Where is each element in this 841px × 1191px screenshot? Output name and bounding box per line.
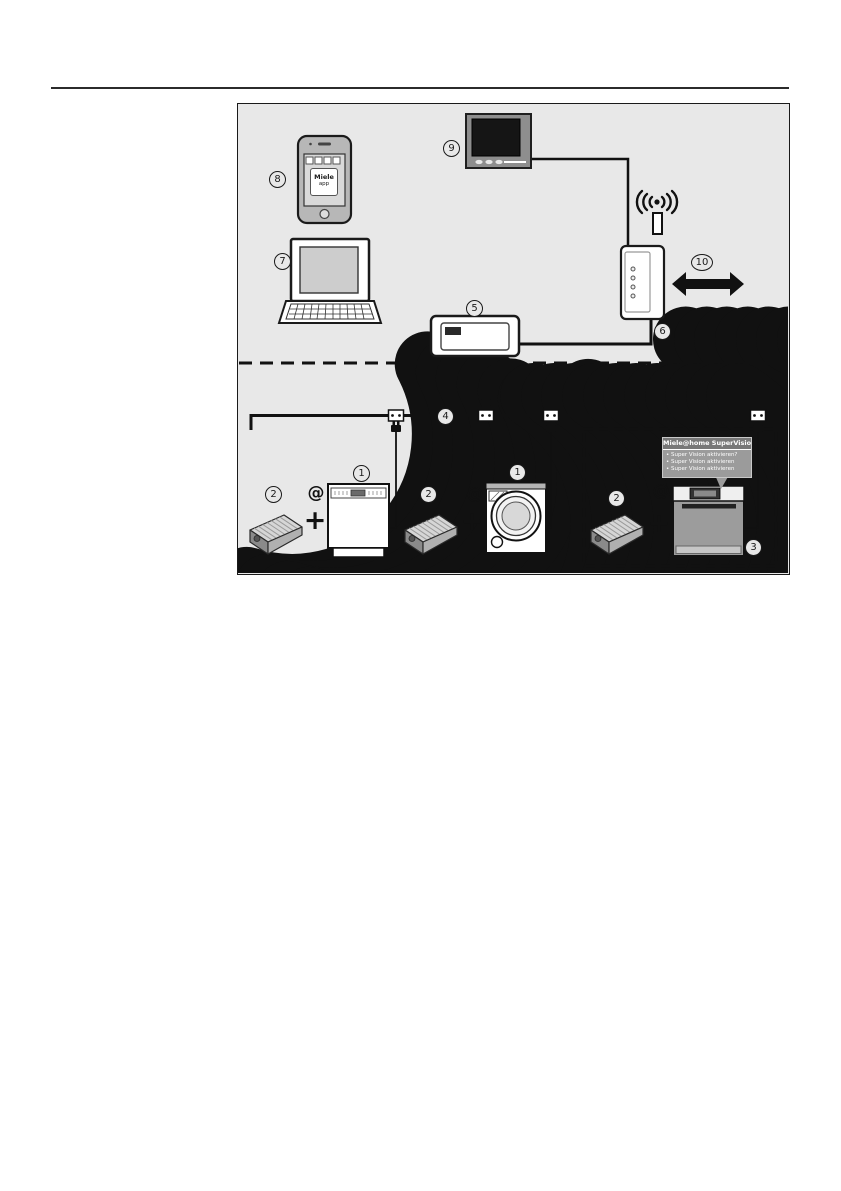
washing-machine-illustration xyxy=(486,483,546,553)
at-symbol-a: @ xyxy=(305,483,327,503)
internet-double-arrow xyxy=(672,272,744,296)
miele-app-tile: Miele app xyxy=(310,168,338,196)
miele-home-system-diagram: 8 9 7 5 6 10 4 1 1 2 2 2 3 @ @ @ + + + M… xyxy=(237,103,790,575)
tv-illustration xyxy=(466,114,531,168)
label-8-smartphone: 8 xyxy=(269,171,286,188)
supervision-line-1: • Super Vision aktivieren? xyxy=(666,452,749,459)
connector-socket-1 xyxy=(389,410,404,432)
label-5-gateway: 5 xyxy=(466,300,483,317)
page-top-rule xyxy=(51,87,789,89)
at-symbol-c: @ xyxy=(650,481,672,501)
gateway-to-router-cable xyxy=(519,319,651,344)
supervision-bubble-title: Miele@home SuperVision xyxy=(663,438,751,450)
module-illustration-a xyxy=(250,515,302,554)
tv-to-router-cable xyxy=(531,159,628,246)
label-1-dishwasher: 1 xyxy=(353,465,370,482)
gateway-illustration xyxy=(431,316,519,356)
label-4-bus: 4 xyxy=(437,408,454,425)
label-7-laptop: 7 xyxy=(274,253,291,270)
dishwasher-illustration xyxy=(328,484,389,557)
plus-symbol-a: + xyxy=(302,508,328,534)
label-1-washer: 1 xyxy=(509,464,526,481)
plus-symbol-b: + xyxy=(459,509,485,535)
oven-illustration xyxy=(673,486,744,556)
at-symbol-b: @ xyxy=(464,484,486,504)
laptop-illustration xyxy=(279,239,381,323)
supervision-line-3: • Super Vision aktivieren xyxy=(666,466,749,473)
label-2-module-c: 2 xyxy=(608,490,625,507)
label-2-module-b: 2 xyxy=(420,486,437,503)
label-2-module-a: 2 xyxy=(265,486,282,503)
supervision-bubble-body: • Super Vision aktivieren? • Super Visio… xyxy=(663,450,751,477)
plus-symbol-c: + xyxy=(646,511,672,537)
manual-page: { "page": {"type": "appliance manual ill… xyxy=(0,0,841,1191)
supervision-line-2: • Super Vision aktivieren xyxy=(666,459,749,466)
antenna-icon xyxy=(637,191,677,234)
label-9-tv: 9 xyxy=(443,140,460,157)
label-10-internet: 10 xyxy=(691,254,713,271)
supervision-bubble: Miele@home SuperVision • Super Vision ak… xyxy=(663,438,751,477)
miele-app-sub: app xyxy=(311,181,337,188)
router-illustration xyxy=(621,246,664,319)
label-3-supervision: 3 xyxy=(745,539,762,556)
label-6-router: 6 xyxy=(654,323,671,340)
miele-app-brand: Miele xyxy=(311,173,337,181)
